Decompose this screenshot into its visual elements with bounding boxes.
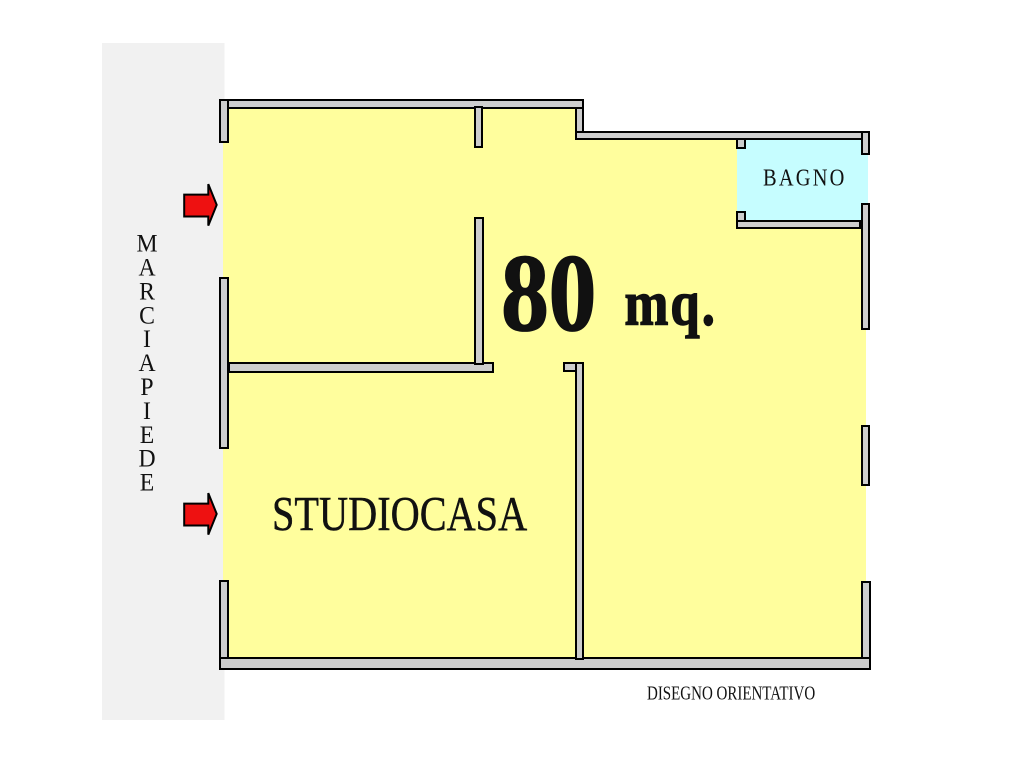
svg-text:BAGNO: BAGNO <box>763 164 846 191</box>
svg-text:STUDIOCASA: STUDIOCASA <box>272 487 527 541</box>
svg-text:E: E <box>140 469 154 497</box>
svg-text:80: 80 <box>501 234 596 355</box>
svg-text:mq.: mq. <box>625 268 717 339</box>
svg-text:DISEGNO ORIENTATIVO: DISEGNO ORIENTATIVO <box>647 682 815 705</box>
